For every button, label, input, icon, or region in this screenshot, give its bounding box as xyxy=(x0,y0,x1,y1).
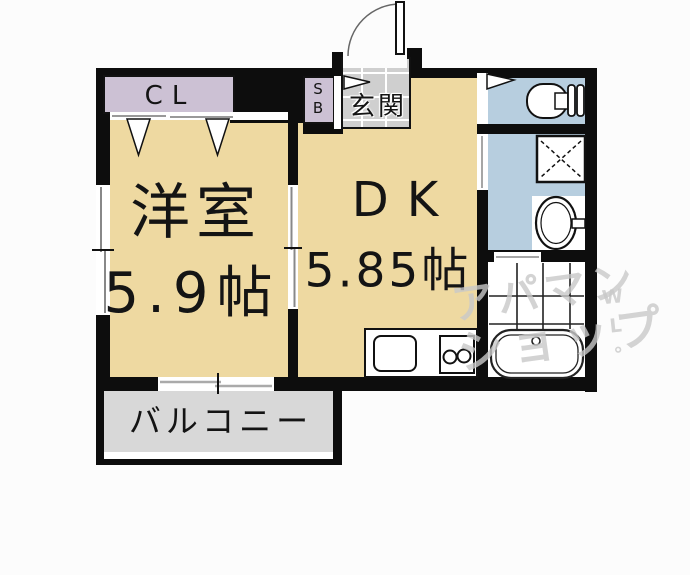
entrance-door-flag-icon xyxy=(344,76,370,89)
dk-size: 5.85帖 xyxy=(305,248,472,295)
entrance-door-icon xyxy=(343,2,407,68)
kitchen-sink-icon xyxy=(374,336,416,371)
balcony-window-icon xyxy=(158,373,274,394)
closet-label: CL xyxy=(145,83,196,109)
western-room-label: 洋室 xyxy=(130,183,262,243)
room-divider-door-icon xyxy=(284,185,302,309)
dk-label: DK xyxy=(352,176,456,224)
western-room-size: 5.9帖 xyxy=(103,266,280,322)
wash-basin-icon xyxy=(532,196,585,250)
bath-door-icon xyxy=(494,252,541,262)
balcony-label: バルコニー xyxy=(129,405,313,437)
washroom-door-icon xyxy=(477,134,488,190)
shoebox-label: SB xyxy=(310,80,325,118)
floorplan-canvas: CL SB 玄関 洋室 5.9帖 DK 5.85帖 バルコニー アパマン ショッ… xyxy=(0,0,690,575)
toilet-icon xyxy=(527,84,584,118)
entrance-label: 玄関 xyxy=(349,94,407,120)
washing-machine-pan-icon xyxy=(537,136,585,182)
closet-doors-icon xyxy=(110,112,288,155)
toilet-door-icon xyxy=(477,73,514,124)
